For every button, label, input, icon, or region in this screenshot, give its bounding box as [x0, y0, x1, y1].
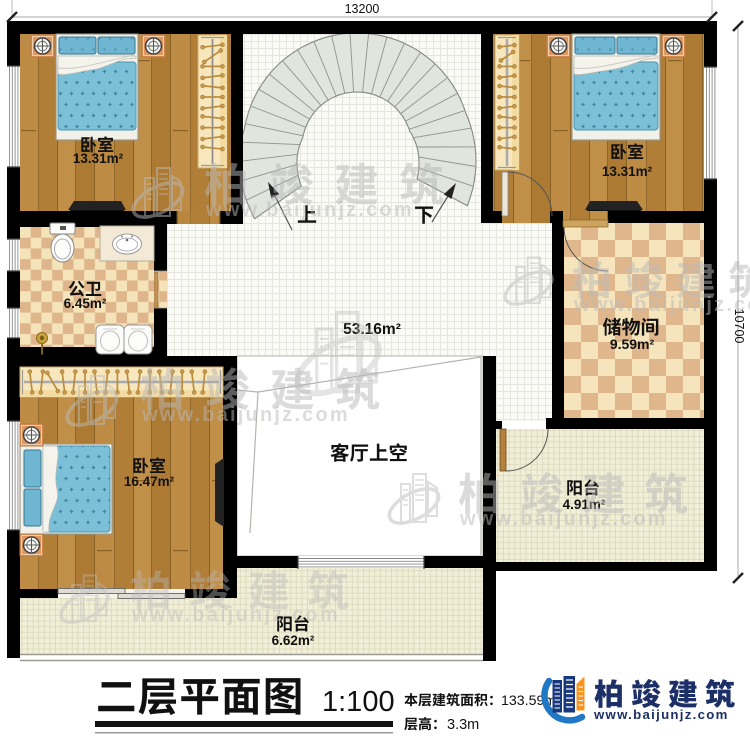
svg-text:www.baijunjz.com: www.baijunjz.com	[205, 199, 414, 221]
svg-text:www.baijunjz.com: www.baijunjz.com	[459, 508, 668, 530]
svg-text:13.31m²: 13.31m²	[73, 151, 124, 166]
svg-text:6.62m²: 6.62m²	[272, 633, 315, 648]
svg-text:1:100: 1:100	[322, 686, 395, 718]
svg-text:13.31m²: 13.31m²	[602, 164, 653, 179]
svg-text:6.45m²: 6.45m²	[64, 296, 107, 311]
svg-text:www.baijunjz.com: www.baijunjz.com	[141, 404, 350, 426]
svg-text:www.baijunjz.com: www.baijunjz.com	[131, 604, 340, 626]
svg-text:133.59m²: 133.59m²	[501, 693, 561, 709]
svg-text:10700: 10700	[732, 309, 746, 344]
svg-text:www.baijunjz.com: www.baijunjz.com	[593, 707, 729, 722]
svg-text:3.3m: 3.3m	[447, 717, 479, 733]
svg-text:13200: 13200	[345, 2, 380, 16]
svg-text:16.47m²: 16.47m²	[124, 474, 175, 489]
svg-text:www.baijunjz.com: www.baijunjz.com	[573, 294, 750, 316]
svg-text:9.59m²: 9.59m²	[610, 336, 655, 352]
